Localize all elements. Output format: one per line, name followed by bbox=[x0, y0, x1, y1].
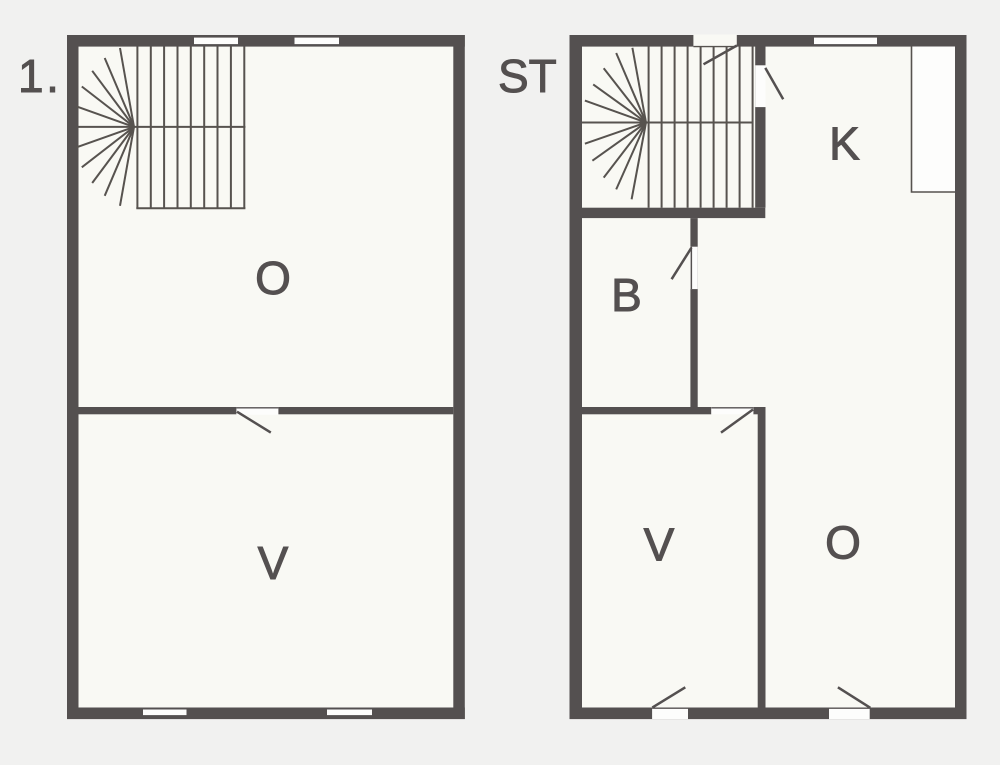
svg-text:K: K bbox=[829, 117, 860, 169]
svg-text:ST: ST bbox=[498, 50, 557, 102]
svg-text:O: O bbox=[825, 517, 861, 569]
svg-text:1.: 1. bbox=[18, 50, 61, 102]
svg-text:V: V bbox=[644, 519, 675, 571]
svg-text:O: O bbox=[255, 252, 291, 304]
svg-text:B: B bbox=[611, 269, 642, 321]
svg-text:V: V bbox=[258, 537, 289, 589]
